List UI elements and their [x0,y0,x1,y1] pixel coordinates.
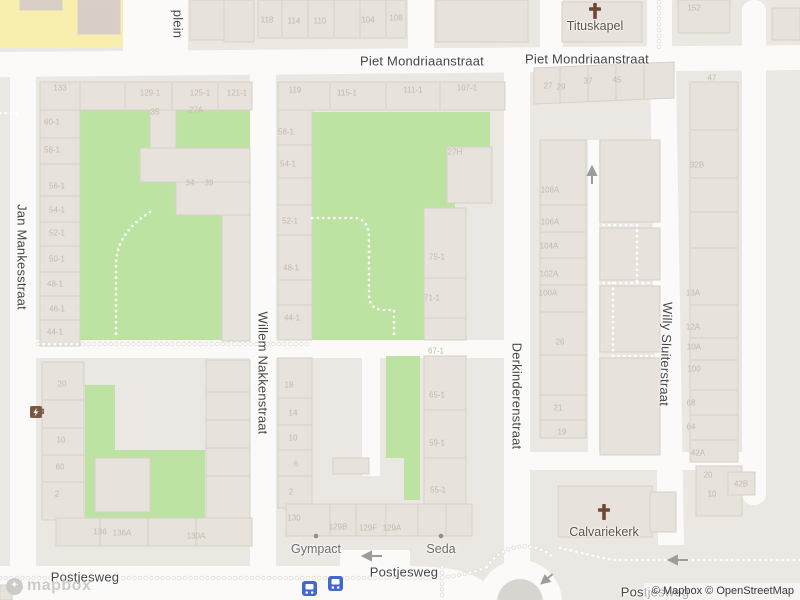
poi-dot-icon [314,534,319,539]
mapbox-logo[interactable]: ✦ mapbox [6,577,91,595]
poi-dot-icon [439,534,444,539]
map-attribution[interactable]: © Mapbox © OpenStreetMap [644,583,800,600]
map-base-layer [0,0,800,600]
mapbox-wordmark[interactable]: mapbox [27,577,91,595]
mapbox-logo-icon[interactable]: ✦ [6,578,23,595]
transit-stop-icon [328,576,343,591]
transit-stop-icon [302,581,317,596]
map-canvas[interactable]: pleinPiet MondriaanstraatPiet Mondriaans… [0,0,800,600]
charging-station-icon [30,406,44,418]
